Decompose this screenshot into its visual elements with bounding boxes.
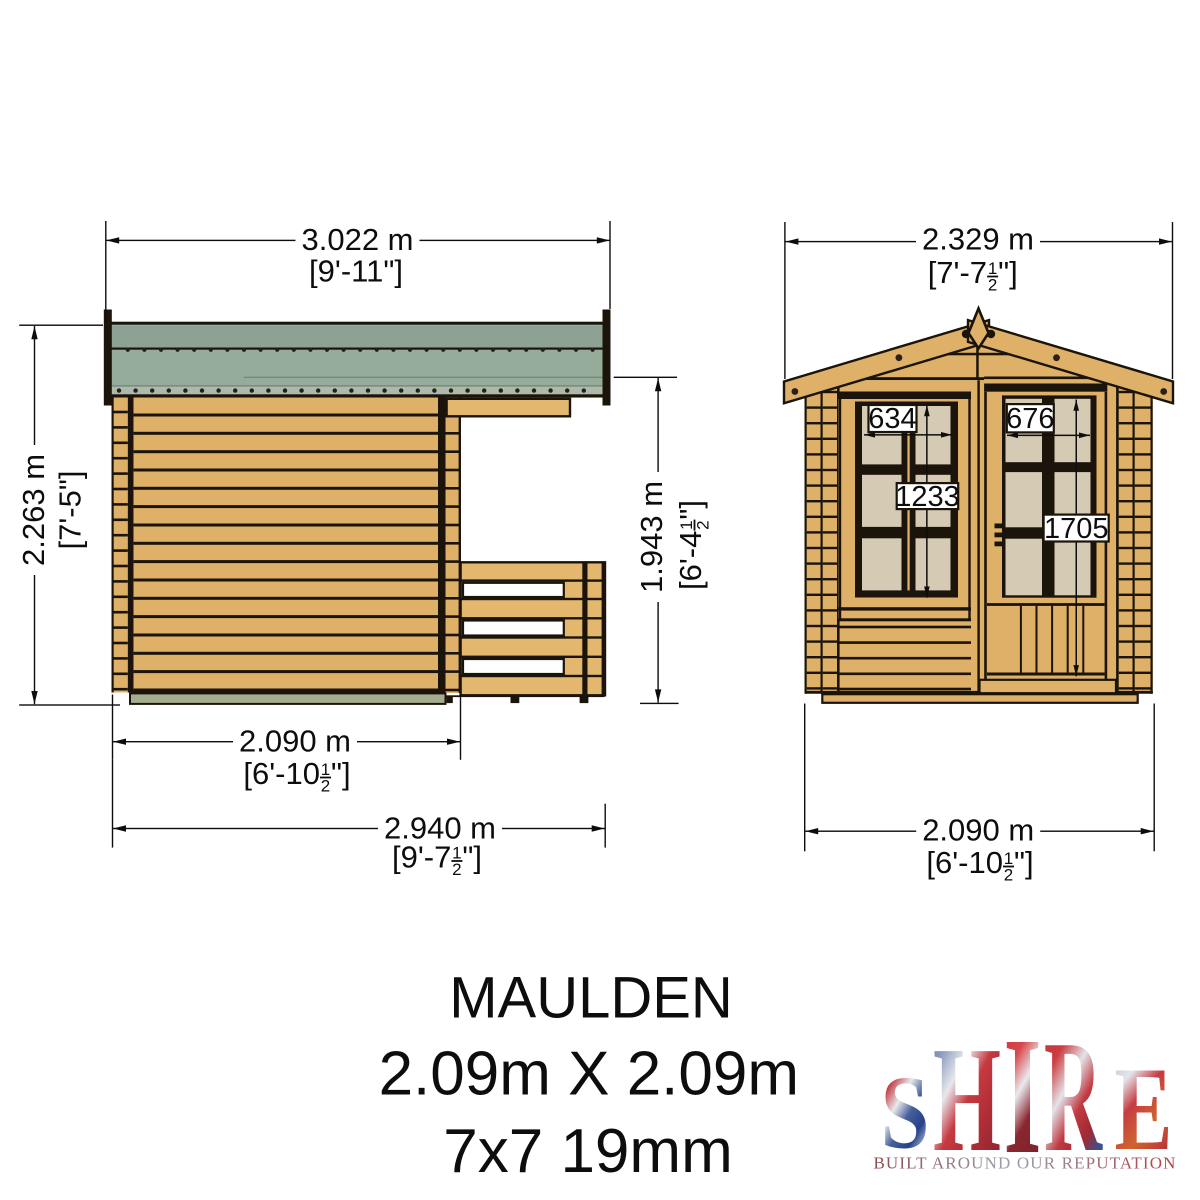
svg-text:1233: 1233: [895, 481, 960, 513]
svg-text:[9'-7: [9'-7: [392, 840, 451, 875]
svg-text:7x7 19mm: 7x7 19mm: [443, 1117, 732, 1186]
svg-text:MAULDEN: MAULDEN: [449, 966, 733, 1031]
svg-text:BUILT AROUND OUR REPUTATION: BUILT AROUND OUR REPUTATION: [873, 1154, 1176, 1173]
svg-text:[7'-7: [7'-7: [928, 255, 987, 290]
svg-text:[6'-10: [6'-10: [926, 845, 1003, 880]
svg-text:"]: "]: [998, 255, 1018, 290]
svg-text:634: 634: [868, 403, 916, 435]
svg-text:[9'-11"]: [9'-11"]: [309, 254, 403, 289]
svg-text:2: 2: [694, 520, 713, 529]
svg-text:2.090 m: 2.090 m: [922, 813, 1034, 848]
svg-text:[6'-4: [6'-4: [673, 531, 708, 590]
svg-text:676: 676: [1006, 403, 1054, 435]
svg-text:"]: "]: [1014, 845, 1034, 880]
svg-text:3.022 m: 3.022 m: [301, 222, 413, 257]
svg-text:1.943 m: 1.943 m: [634, 481, 669, 593]
svg-text:2: 2: [452, 860, 461, 879]
svg-text:[6'-10: [6'-10: [243, 756, 320, 791]
svg-text:2: 2: [1004, 866, 1013, 885]
svg-text:"]: "]: [673, 500, 708, 520]
svg-text:2.09m X 2.09m: 2.09m X 2.09m: [379, 1040, 799, 1109]
svg-text:1705: 1705: [1044, 513, 1109, 545]
svg-text:2.329 m: 2.329 m: [922, 222, 1034, 257]
svg-text:"]: "]: [462, 840, 482, 875]
svg-text:[7'-5"]: [7'-5"]: [53, 471, 88, 550]
svg-text:2.090 m: 2.090 m: [239, 724, 351, 759]
svg-text:2: 2: [988, 276, 997, 295]
svg-text:"]: "]: [331, 756, 351, 791]
svg-text:2.263 m: 2.263 m: [16, 454, 51, 566]
svg-text:2: 2: [321, 777, 330, 796]
